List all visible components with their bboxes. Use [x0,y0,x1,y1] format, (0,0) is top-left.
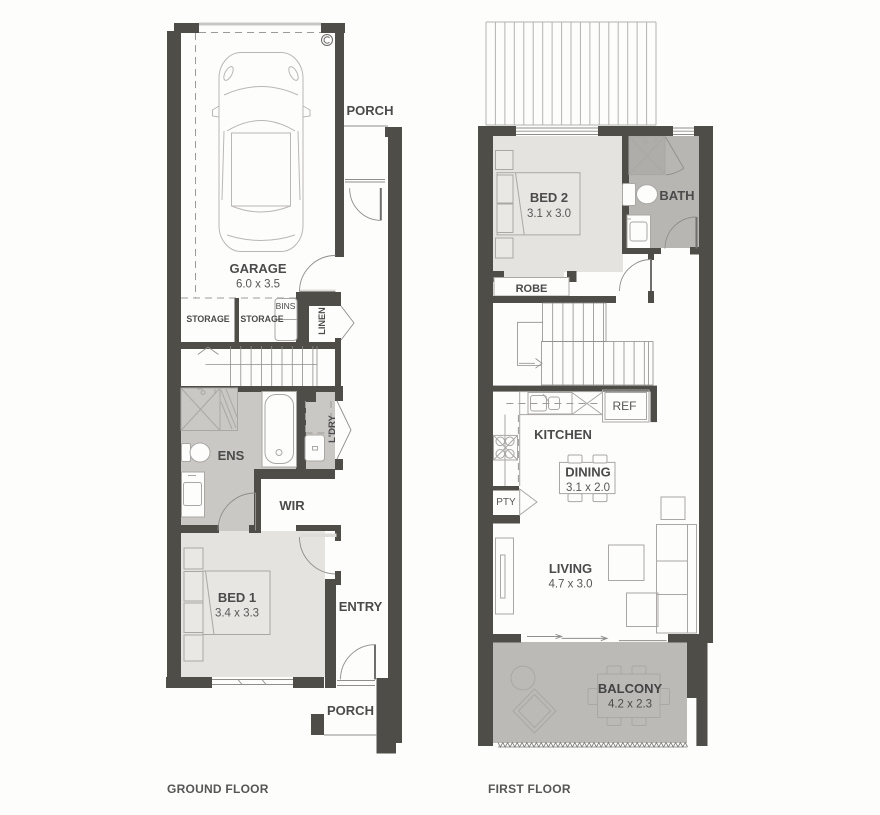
svg-text:4.2 x 2.3: 4.2 x 2.3 [608,699,652,711]
svg-text:ENTRY: ENTRY [339,599,383,614]
svg-text:LINEN: LINEN [317,307,327,335]
svg-text:3.1 x 2.0: 3.1 x 2.0 [566,482,610,494]
svg-text:LIVING: LIVING [549,561,592,576]
svg-text:3.1 x 3.0: 3.1 x 3.0 [527,208,571,220]
svg-text:WIR: WIR [279,498,305,513]
svg-text:STORAGE: STORAGE [240,314,283,324]
svg-text:PORCH: PORCH [347,103,394,118]
svg-text:BATH: BATH [659,188,694,203]
svg-text:4.7 x 3.0: 4.7 x 3.0 [548,579,592,591]
svg-text:L'DRY: L'DRY [327,414,338,442]
svg-text:PORCH: PORCH [327,703,374,718]
svg-text:6.0 x 3.5: 6.0 x 3.5 [236,279,280,291]
svg-text:DINING: DINING [565,465,611,480]
svg-text:PTY: PTY [496,497,516,508]
svg-text:ENS: ENS [218,448,245,463]
svg-text:FIRST FLOOR: FIRST FLOOR [488,782,571,796]
svg-text:ROBE: ROBE [516,283,548,295]
svg-text:STORAGE: STORAGE [186,314,229,324]
svg-text:3.4 x 3.3: 3.4 x 3.3 [215,608,259,620]
svg-text:BED 2: BED 2 [530,190,568,205]
svg-text:BINS: BINS [276,301,296,311]
svg-text:BED 1: BED 1 [218,590,256,605]
svg-text:GROUND FLOOR: GROUND FLOOR [167,782,269,796]
svg-text:BALCONY: BALCONY [598,681,663,696]
svg-text:KITCHEN: KITCHEN [534,427,592,442]
svg-text:GARAGE: GARAGE [229,261,286,276]
svg-text:REF: REF [613,399,637,413]
